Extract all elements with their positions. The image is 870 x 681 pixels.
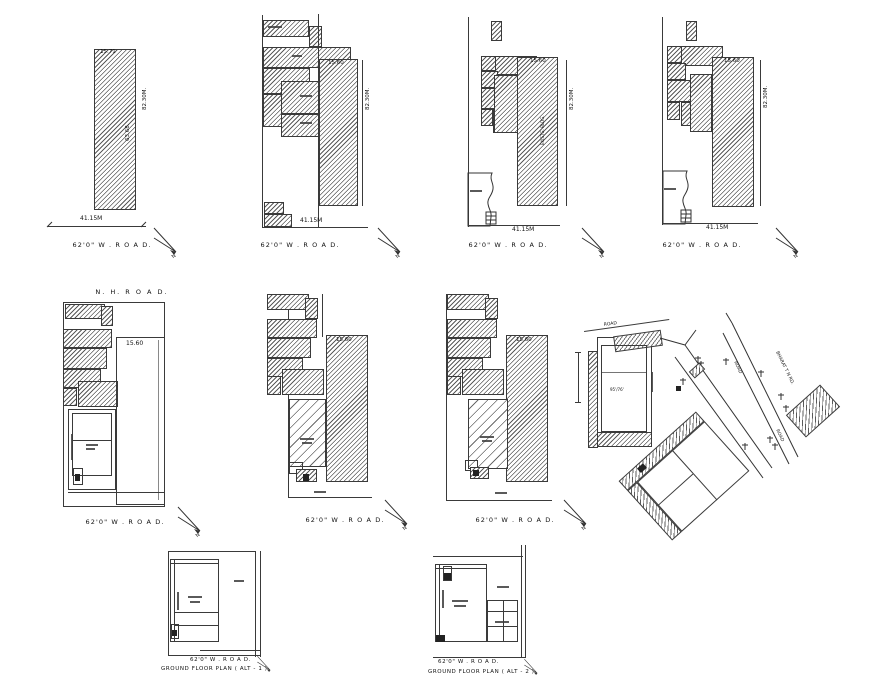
alt2-road-label: 62'0" W . R O A D. [438,660,499,666]
site1-frontage-line [48,226,146,227]
dim-tick [575,402,581,403]
road-edge-line [521,545,522,658]
room-block [282,369,324,395]
dim-tick [575,352,581,353]
cad-sheet: 15.71 82.30M. 63.68. 41.15M 62'0" W . R … [0,0,870,681]
site8-plot-dim: 95'/76' [610,388,624,392]
north-arrow-icon: N [383,498,413,532]
alt2-caption: GROUND FLOOR PLAN ( ALT - 2 ) [428,670,535,676]
north-arrow-icon: N [152,226,182,260]
site1-inner-dim: 63.68. [126,124,132,142]
north-arrow-icon: N [774,226,804,260]
north-arrow-icon: N [376,226,406,260]
site2-frontage-dim: 41.15M [300,218,322,224]
text-smudge [300,438,314,440]
text-smudge [300,122,312,124]
text-smudge [268,26,282,28]
text-smudge [234,580,244,582]
text-smudge [314,491,326,493]
setback-curve [462,172,502,228]
room-block [63,388,77,406]
site3-building-hatch [517,57,558,206]
stair-fill [172,630,177,636]
room-block [65,304,105,319]
site7-road-label: 62'0" W . R O A D. [455,517,575,524]
text-smudge [480,436,494,438]
site8-road-b-label: ROAD [774,428,785,443]
site2-frontage-line [262,227,368,228]
marker-fill [436,635,445,642]
site3-width-dim: 15.60 [530,59,546,65]
dim-line [158,340,159,500]
site4-frontage-dim: 41.15M [706,225,728,231]
alt1-caption: GROUND FLOOR PLAN ( ALT - 1 ) [161,667,268,673]
site2-plot-hatch [319,59,358,206]
room-block [267,319,317,338]
setback-curve [657,170,697,226]
stair-fill [303,474,309,481]
site4-depth-dim: 82.30M. [764,86,770,108]
room-block [263,94,282,127]
boundary-line [322,294,323,337]
room-block [264,202,284,214]
north-letter: N [581,525,588,532]
text-smudge [664,188,676,190]
alt1-boundary [168,551,169,655]
site7-yard-hatch [468,399,508,469]
site7-frontage-line [446,500,552,501]
road-edge-line [525,545,526,658]
wall-line [170,563,219,564]
room-block [447,376,461,395]
north-letter: N [793,253,800,260]
north-letter: N [395,253,402,260]
room-block [267,338,311,358]
text-smudge [86,448,95,450]
text-smudge [495,621,509,623]
north-letter: N [599,253,606,260]
room-block [63,348,107,369]
site5-road-label: 62'0" W . R O A D. [65,519,185,526]
site1-width-dim: 15.71 [100,50,116,56]
dim-line [578,352,579,402]
text-smudge [292,55,302,57]
text-smudge [452,600,468,602]
building-wing-hatch [494,75,518,133]
room-block [101,306,113,326]
room-block [267,376,281,395]
room-block [63,329,112,348]
building-wing-hatch [690,74,712,132]
site3-road-label: 62'0" W . R O A D. [448,242,568,249]
site6-width-dim: 15.60 [336,338,352,344]
road-edge-line [255,551,256,657]
stair-fill [75,474,80,481]
site4-road-label: 62'0" W . R O A D. [642,242,762,249]
room-block [447,294,489,310]
room-block [267,294,309,310]
text-smudge [71,434,73,460]
dim-line [362,60,363,206]
site2-width-dim: 15.60 [328,61,344,67]
wall-line [439,564,440,642]
boundary-line [68,492,165,493]
road-edge-line [260,551,261,657]
text-smudge [300,95,312,97]
text-smudge [302,442,312,444]
text-smudge [177,592,179,610]
text-smudge [497,586,509,588]
room-block [263,20,309,37]
wall-line [174,612,219,613]
room-block [667,63,686,80]
site4-building-hatch [712,57,754,207]
site1-depth-dim: 82.30M. [143,88,149,110]
site2-depth-dim: 82.30M. [366,88,372,110]
room-block [481,109,493,126]
alt2-boundary [433,556,523,557]
north-letter: N [171,253,178,260]
site6-plot-hatch [326,335,368,482]
room-block [667,102,680,120]
north-arrow-icon [523,658,541,678]
room-block [447,338,491,358]
room-block [447,319,497,338]
alt1-boundary [168,551,256,552]
dim-line [566,60,567,206]
dim-line [760,60,761,206]
text-smudge [482,440,492,442]
room-block [686,21,697,41]
stair-fill [473,470,479,476]
site5-width-dim: 15.60 [126,341,143,347]
dim-line [200,650,260,651]
site4-width-dim: 15.60 [724,59,740,65]
text-smudge [495,492,507,494]
room-block [491,21,502,41]
north-letter: N [402,525,409,532]
wall-line [72,440,112,441]
room-block [462,369,504,395]
room-block [305,298,318,319]
north-arrow-icon [256,655,274,675]
site3-building-label: EXISTG. BLDG. [541,116,545,146]
room-block [309,26,322,47]
room-block [78,381,118,407]
site8-road-a-label: ROAD [732,360,743,375]
site8-highway-label: BHARAT T N RD. [774,350,795,385]
stair-fill [444,573,451,580]
marker-fill [676,386,681,391]
boundary-line [168,655,260,656]
site3-frontage-dim: 41.15M [512,227,534,233]
site3-depth-dim: 82.30M. [570,88,576,110]
site1-frontage-dim: 41.15M [80,216,102,222]
site7-plot-hatch [506,335,548,482]
site2-road-label: 62'0" W . R O A D. [240,242,360,249]
text-smudge [470,190,482,192]
room-block [264,214,292,227]
site7-width-dim: 15.60 [516,338,532,344]
text-smudge [188,596,202,598]
alt1-road-label: 62'0" W . R O A D. [190,658,251,664]
text-smudge [454,605,466,607]
text-smudge [190,601,200,603]
site6-frontage-line [288,497,372,498]
north-arrow-icon: N [580,226,610,260]
north-letter: N [195,532,202,539]
boundary-line [433,657,525,658]
site5-nh-road-label: N. H. R O A D. [72,289,192,296]
wall-line [174,625,219,626]
north-arrow-icon: N [176,505,206,539]
text-smudge [86,444,98,446]
room-block [485,298,498,319]
site6-yard-hatch [289,399,326,467]
north-arrow-icon: N [562,498,592,532]
text-smudge [442,590,444,608]
